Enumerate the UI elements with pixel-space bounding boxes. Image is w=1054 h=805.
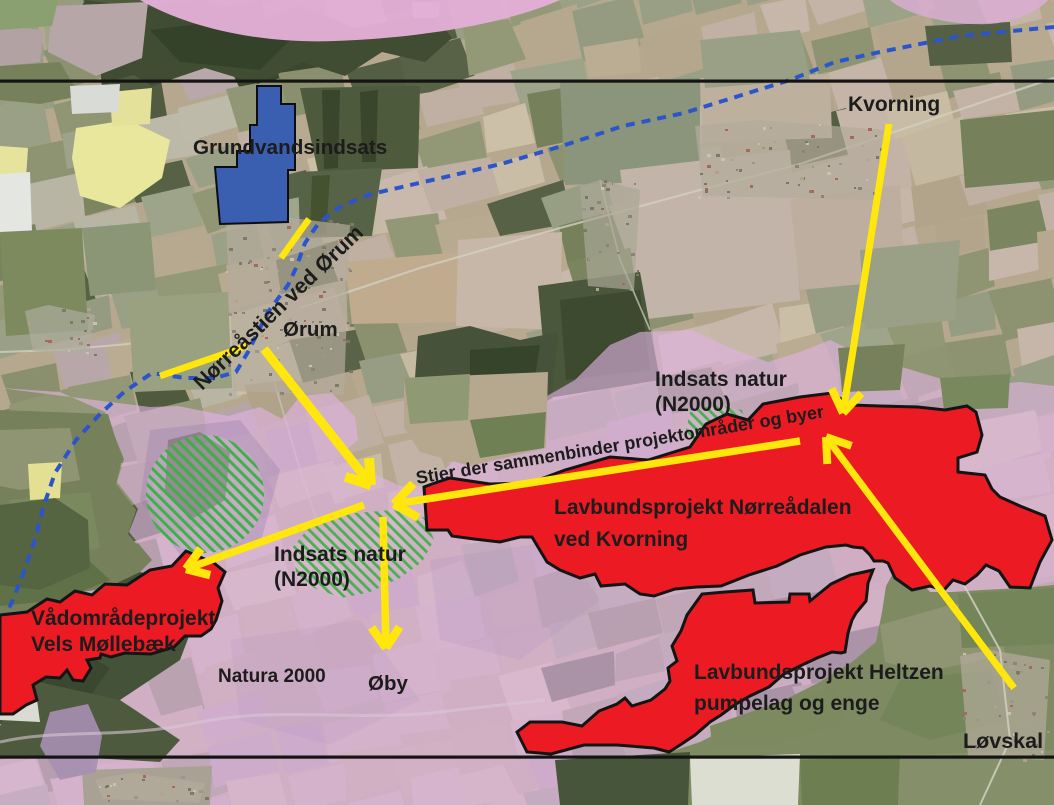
- svg-text:Kvorning: Kvorning: [848, 93, 940, 116]
- svg-text:Vels Møllebæk: Vels Møllebæk: [31, 633, 176, 656]
- svg-text:(N2000): (N2000): [274, 568, 350, 591]
- svg-text:Grundvandsindsats: Grundvandsindsats: [193, 136, 387, 159]
- svg-text:Natura 2000: Natura 2000: [218, 666, 326, 687]
- svg-text:Lavbundsprojekt Heltzen: Lavbundsprojekt Heltzen: [694, 661, 944, 684]
- svg-text:ved Kvorning: ved Kvorning: [554, 528, 688, 551]
- svg-text:Øby: Øby: [368, 672, 408, 695]
- svg-text:Vådområdeprojekt: Vådområdeprojekt: [31, 607, 215, 630]
- svg-text:Indsats natur: Indsats natur: [655, 368, 787, 391]
- svg-text:Lavbundsprojekt Nørreådalen: Lavbundsprojekt Nørreådalen: [554, 496, 852, 519]
- svg-text:Ørum: Ørum: [283, 318, 338, 341]
- svg-text:Løvskal: Løvskal: [963, 729, 1043, 753]
- svg-text:Indsats natur: Indsats natur: [274, 543, 406, 566]
- svg-text:pumpelag og enge: pumpelag og enge: [694, 692, 880, 715]
- svg-text:(N2000): (N2000): [655, 393, 731, 416]
